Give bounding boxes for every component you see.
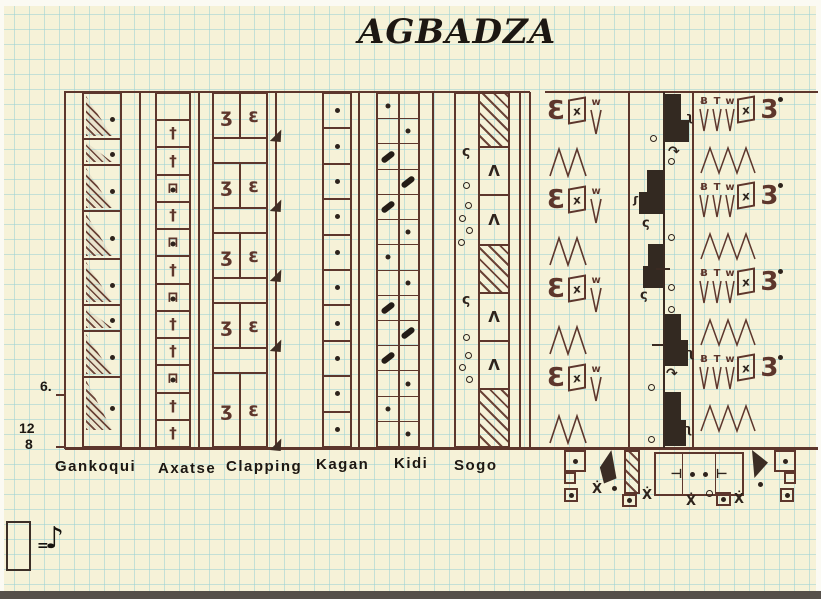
stroke-dot (569, 493, 574, 498)
footer-x-symbol: Ẋ (734, 492, 744, 507)
grid-line (358, 92, 360, 448)
stroke-dot (110, 189, 115, 194)
footer-wide-cell: ⊢ (716, 454, 742, 494)
up-stroke-symbol: † (169, 344, 177, 359)
mute-stroke-bar (380, 150, 396, 164)
stroke-dot (703, 472, 708, 477)
x-box-symbol: x (568, 96, 586, 124)
footer-hatch-box (624, 450, 640, 494)
stroke-dot (171, 378, 176, 383)
sogo-open-circle (463, 182, 470, 189)
b-flag-triangle: Ƀ (698, 183, 710, 219)
clap-glyph-right: ɛ (241, 304, 266, 347)
stroke-dot (171, 242, 176, 247)
stroke-dot (335, 391, 340, 396)
clap-glyph-right: ɛ (241, 374, 266, 446)
axatse-up-cell: † (157, 121, 189, 148)
footer-dot-box (716, 492, 731, 506)
t-mark: T (714, 97, 721, 107)
arc-hatch-symbol: Ɛ (547, 276, 565, 302)
narrow-v-shape (724, 193, 736, 219)
page-title: AGBADZA (358, 12, 556, 52)
sogo-accent-cell: Λ (480, 148, 508, 196)
narrow-v-shape (711, 193, 723, 219)
label-clapping: Clapping (226, 458, 302, 475)
sogo-accent-cell: Λ (480, 342, 508, 390)
gankoqui-stroke-cell (84, 260, 120, 306)
x-box-symbol: x (737, 353, 755, 381)
sogo-hatch-cell (480, 246, 508, 294)
kidi-column (376, 92, 420, 448)
x-box-symbol: x (568, 185, 586, 213)
narrow-v-shape (589, 375, 603, 403)
time-signature-top: 12 (19, 420, 35, 436)
kidi-cell (378, 346, 418, 371)
open-stroke-dot (406, 280, 411, 285)
bell-stroke-triangle (86, 380, 112, 430)
gankoqui-stroke-cell (84, 306, 120, 332)
axatse-up-cell: † (157, 339, 189, 366)
scan-edge-bottom (0, 591, 821, 599)
eighth-note-icon: ♪ (45, 524, 64, 554)
kagan-column (322, 92, 352, 448)
timeline-tick (656, 268, 670, 270)
arc-hatch-symbol: Ɛ (547, 187, 565, 213)
axatse-column: † † ⊓ † ⊓ † ⊓ † † ⊓ † † (155, 92, 191, 448)
stroke-dot (110, 152, 115, 157)
stroke-dot (785, 493, 790, 498)
notation-unit: Ƀ T w x Ɛ (698, 355, 802, 437)
timeline-block (665, 420, 686, 446)
stroke-dot (335, 179, 340, 184)
sogo-hatch-cell (480, 94, 508, 148)
stroke-dot (110, 236, 115, 241)
b-flag-mark: Ƀ (700, 269, 708, 279)
axatse-up-cell: † (157, 394, 189, 421)
grid-line (432, 92, 434, 448)
axatse-up-cell: † (157, 257, 189, 284)
kagan-stroke-cell (324, 306, 350, 341)
t-triangle: T (711, 183, 723, 219)
stroke-dot (335, 321, 340, 326)
gankoqui-stroke-cell (84, 378, 120, 432)
arc-dot (778, 97, 783, 102)
clap-glyph-right: ɛ (241, 234, 266, 277)
w-mark: w (725, 183, 734, 193)
sogo-open-circle (463, 334, 470, 341)
x-mark: x (742, 188, 750, 203)
footer-step-box (784, 472, 796, 484)
clap-glyph-left: ʒ (214, 304, 241, 347)
sogo-squiggle-symbol: ς (462, 292, 470, 308)
timeline-tick (652, 344, 665, 346)
narrow-v-shape (724, 279, 736, 305)
open-stroke-dot (386, 104, 391, 109)
notation-unit: Ɛ x w (547, 98, 627, 182)
gankoqui-column (82, 92, 122, 448)
open-stroke-dot (386, 255, 391, 260)
b-flag-mark: Ƀ (700, 355, 708, 365)
clap-rest-cell (214, 139, 266, 164)
kagan-stroke-cell (324, 94, 350, 129)
footer-flag-icon (598, 449, 621, 485)
kidi-cell (378, 371, 418, 396)
grid-line (139, 92, 141, 448)
clapping-column: ʒɛ ʒɛ ʒɛ ʒɛ ʒɛ (212, 92, 268, 448)
timeline-block (639, 192, 663, 214)
timeline-block (665, 314, 681, 340)
stroke-dot (110, 406, 115, 411)
kidi-cell (378, 321, 418, 346)
w-mark: w (725, 97, 734, 107)
bell-stroke-triangle (86, 96, 112, 136)
narrow-v-shape (711, 107, 723, 133)
axatse-up-cell: † (157, 203, 189, 230)
stroke-dot (110, 355, 115, 360)
e-arc-mark: Ɛ (760, 183, 778, 209)
gankoqui-stroke-cell (84, 140, 120, 166)
up-stroke-symbol: † (169, 126, 177, 141)
sogo-open-circle (465, 202, 472, 209)
axatse-down-cell: ⊓ (157, 230, 189, 257)
kidi-cell (378, 119, 418, 144)
gankoqui-stroke-cell (84, 166, 120, 212)
up-stroke-symbol: † (169, 263, 177, 278)
scan-edge-top (0, 0, 821, 6)
x-box-symbol: x (568, 363, 586, 391)
w-mark: w (591, 365, 600, 375)
arc-dot (778, 269, 783, 274)
w-mark: w (591, 187, 600, 197)
narrow-v-shape (589, 108, 603, 136)
bell-stroke-triangle (86, 168, 112, 208)
stroke-dot (171, 296, 176, 301)
measure-tick (56, 446, 65, 448)
stroke-dot (721, 497, 726, 502)
stroke-dot (335, 250, 340, 255)
kidi-cell (378, 296, 418, 321)
w-triangle-symbol: w (724, 269, 736, 305)
axatse-up-cell: † (157, 148, 189, 175)
footer-x-symbol: Ẋ (642, 488, 652, 503)
gankoqui-stroke-cell (84, 212, 120, 260)
b-flag-mark: Ƀ (700, 183, 708, 193)
w-triangle-symbol: w (589, 98, 603, 136)
open-stroke-dot (406, 230, 411, 235)
footer-dot-box (780, 488, 794, 502)
timeline-circle (668, 158, 675, 165)
timeline-block (665, 94, 681, 120)
zigzag-band (698, 403, 764, 433)
clap-glyph-left: ʒ (214, 234, 241, 277)
mute-stroke-bar (400, 175, 416, 189)
hook-symbol: ʅ (632, 192, 639, 206)
timeline-block (665, 340, 688, 366)
narrow-v-shape (589, 286, 603, 314)
mute-stroke-bar (400, 326, 416, 340)
scan-edge-left (0, 0, 4, 599)
kidi-cell (378, 94, 418, 119)
timeline-circle (648, 436, 655, 443)
hook-symbol: ʅ (687, 346, 694, 360)
kidi-cell (378, 195, 418, 220)
w-triangle-symbol: w (589, 187, 603, 225)
timeline-circle (668, 234, 675, 241)
bell-stroke-triangle (86, 334, 112, 374)
b-flag-triangle: Ƀ (698, 355, 710, 391)
arc-hatch-symbol: Ɛ (756, 355, 783, 360)
stroke-dot (110, 318, 115, 323)
timeline-circle (648, 384, 655, 391)
arc-dot (778, 355, 783, 360)
narrow-v-shape (711, 365, 723, 391)
zigzag-band (698, 317, 764, 347)
stroke-dot (335, 285, 340, 290)
sogo-open-circle (459, 364, 466, 371)
clap-glyph-left: ʒ (214, 164, 241, 207)
mute-stroke-bar (380, 301, 396, 315)
x-mark: x (742, 102, 750, 117)
gankoqui-stroke-cell (84, 94, 120, 140)
x-mark: x (742, 274, 750, 289)
timeline-circle (668, 306, 675, 313)
w-mark: w (591, 98, 600, 108)
clap-cell: ʒɛ (214, 94, 266, 139)
label-gankoqui: Gankoqui (55, 458, 136, 475)
notation-unit: Ƀ T w x Ɛ (698, 269, 802, 351)
narrow-v-shape (711, 279, 723, 305)
timeline-block (648, 244, 663, 266)
narrow-v-shape (589, 197, 603, 225)
arc-hatch-symbol: Ɛ (756, 183, 783, 188)
stroke-dot (110, 283, 115, 288)
stroke-dot (573, 459, 578, 464)
score-sheet: AGBADZA 6. 12 8 † † ⊓ † ⊓ † ⊓ † † ⊓ (0, 0, 821, 599)
legend-cell-box (6, 521, 31, 571)
timeline-circle (668, 284, 675, 291)
footer-dot-box (622, 494, 637, 507)
stroke-dot (783, 459, 788, 464)
w-mark: w (725, 355, 734, 365)
stroke-dot (612, 486, 617, 491)
squiggle-symbol: ς (640, 288, 648, 303)
x-mark: x (573, 192, 581, 207)
w-triangle-symbol: w (589, 365, 603, 403)
measure-tick (56, 394, 65, 396)
footer-circle (706, 490, 713, 497)
axatse-rest-cell (157, 94, 189, 121)
notation-unit: Ƀ T w x Ɛ (698, 97, 802, 179)
x-box-symbol: x (737, 267, 755, 295)
kidi-cell (378, 271, 418, 296)
notation-unit: Ɛ x w (547, 276, 627, 360)
stroke-dot (171, 187, 176, 192)
sogo-open-circle (459, 215, 466, 222)
e-arc-mark: Ɛ (760, 355, 778, 381)
footer-wide-cell (683, 454, 716, 494)
clap-glyph-left: ʒ (214, 374, 241, 446)
clap-rest-cell (214, 279, 266, 304)
zigzag-band (547, 413, 589, 445)
accent-symbol: Λ (488, 211, 500, 229)
turn-symbol: ↷ (666, 366, 678, 382)
tick-left-symbol: ⊣ (670, 467, 682, 482)
w-triangle-symbol: w (589, 276, 603, 314)
bell-stroke-triangle (86, 214, 112, 256)
label-axatse: Axatse (158, 460, 216, 477)
e-arc-mark: Ɛ (760, 97, 778, 123)
footer-flag-icon (752, 450, 768, 478)
hook-symbol: ʅ (686, 110, 693, 124)
sogo-accent-cell: Λ (480, 294, 508, 342)
kidi-cell (378, 220, 418, 245)
hook-symbol: ʅ (685, 422, 692, 436)
grid-line (275, 92, 277, 448)
w-triangle-symbol: w (724, 183, 736, 219)
label-sogo: Sogo (454, 457, 498, 474)
stroke-dot (110, 117, 115, 122)
sogo-open-circle (466, 227, 473, 234)
timeline-column: ʅ ↷ ʅ ς ς ʅ ↷ ʅ (630, 92, 694, 448)
accent-symbol: Λ (488, 356, 500, 374)
t-triangle: T (711, 97, 723, 133)
sogo-right-subcolumn: Λ Λ Λ Λ (480, 94, 508, 446)
footer-x-symbol: Ẋ (592, 482, 602, 497)
x-box-symbol: x (737, 181, 755, 209)
open-stroke-dot (406, 431, 411, 436)
measure-marker: 6. (40, 378, 52, 394)
sogo-open-circle (466, 376, 473, 383)
stroke-dot (335, 108, 340, 113)
kidi-cell (378, 397, 418, 422)
zigzag-band (547, 146, 589, 178)
timeline-block (665, 392, 681, 420)
axatse-up-cell: † (157, 421, 189, 446)
clap-glyph-right: ɛ (241, 94, 266, 137)
sogo-open-circle (458, 239, 465, 246)
squiggle-symbol: ς (642, 216, 650, 231)
stroke-dot (690, 472, 695, 477)
arc-hatch-symbol: Ɛ (756, 97, 783, 102)
up-stroke-symbol: † (169, 317, 177, 332)
sogo-column: ς ς Λ Λ Λ Λ (454, 92, 510, 448)
sogo-hatch-cell (480, 390, 508, 446)
scan-edge-right (816, 0, 821, 599)
e-arc-mark: Ɛ (760, 269, 778, 295)
sogo-squiggle-symbol: ς (462, 144, 470, 160)
footer-step-box (564, 472, 576, 484)
grid-line (198, 92, 200, 448)
up-stroke-symbol: † (169, 154, 177, 169)
b-flag-triangle: Ƀ (698, 269, 710, 305)
stroke-dot (335, 144, 340, 149)
up-stroke-symbol: † (169, 426, 177, 441)
up-stroke-symbol: † (169, 208, 177, 223)
footer-wide-box: ⊣ ⊢ (654, 452, 744, 496)
narrow-v-shape (724, 107, 736, 133)
kagan-stroke-cell (324, 342, 350, 377)
sogo-left-subcolumn: ς ς (456, 94, 480, 446)
mute-stroke-bar (380, 351, 396, 365)
footer-wide-cell: ⊣ (656, 454, 683, 494)
axatse-up-cell: † (157, 312, 189, 339)
narrow-v-shape (698, 107, 710, 133)
footer-dot-box (564, 488, 578, 502)
x-mark: x (573, 370, 581, 385)
kagan-stroke-cell (324, 377, 350, 412)
footer-notation: Ẋ Ẋ ⊣ ⊢ Ẋ Ẋ (556, 450, 820, 508)
timeline-block (647, 170, 663, 192)
narrow-v-shape (698, 365, 710, 391)
t-triangle: T (711, 355, 723, 391)
tick-right-symbol: ⊢ (716, 467, 728, 482)
x-mark: x (742, 360, 750, 375)
clap-rest-cell (214, 349, 266, 374)
zigzag-band (547, 235, 589, 267)
x-box-symbol: x (737, 95, 755, 123)
arc-hatch-symbol: Ɛ (547, 98, 565, 124)
b-flag-mark: Ƀ (700, 97, 708, 107)
up-stroke-symbol: † (169, 399, 177, 414)
label-kidi: Kidi (394, 455, 428, 472)
kidi-cell (378, 245, 418, 270)
notation-unit: Ɛ x w (547, 187, 627, 271)
x-mark: x (573, 103, 581, 118)
zigzag-band (698, 231, 764, 261)
kagan-stroke-cell (324, 129, 350, 164)
w-triangle-symbol: w (724, 97, 736, 133)
open-stroke-dot (406, 381, 411, 386)
stroke-dot (335, 214, 340, 219)
axatse-down-cell: ⊓ (157, 366, 189, 393)
kidi-cell (378, 144, 418, 169)
arc-hatch-symbol: Ɛ (756, 269, 783, 274)
dance-notation-column-a: Ɛ x w Ɛ x w Ɛ x w Ɛ x (547, 98, 627, 448)
narrow-v-shape (724, 365, 736, 391)
axatse-down-cell: ⊓ (157, 285, 189, 312)
kidi-cell (378, 422, 418, 446)
zigzag-band (698, 145, 764, 175)
t-mark: T (714, 183, 721, 193)
footer-x-symbol: Ẋ (686, 494, 696, 509)
footer-step-box (774, 450, 796, 472)
x-mark: x (573, 281, 581, 296)
gankoqui-stroke-cell (84, 332, 120, 378)
open-stroke-dot (406, 129, 411, 134)
dance-notation-column-c: Ƀ T w x Ɛ Ƀ T w x Ɛ Ƀ T w x (698, 97, 802, 448)
axatse-down-cell: ⊓ (157, 176, 189, 203)
bell-stroke-triangle (86, 142, 112, 162)
accent-symbol: Λ (488, 308, 500, 326)
grid-line (519, 92, 521, 448)
w-mark: w (725, 269, 734, 279)
mute-stroke-bar (380, 200, 396, 214)
clap-glyph-right: ɛ (241, 164, 266, 207)
notation-unit: Ƀ T w x Ɛ (698, 183, 802, 265)
label-kagan: Kagan (316, 456, 369, 473)
clap-cell: ʒɛ (214, 164, 266, 209)
open-stroke-dot (386, 406, 391, 411)
timeline-circle (650, 135, 657, 142)
clap-cell: ʒɛ (214, 304, 266, 349)
stroke-dot (758, 482, 763, 487)
x-box-symbol: x (568, 274, 586, 302)
clap-cell: ʒɛ (214, 234, 266, 279)
sogo-open-circle (465, 352, 472, 359)
stroke-dot (627, 498, 632, 503)
notation-unit: Ɛ x w (547, 365, 627, 449)
time-signature-bottom: 8 (25, 436, 33, 452)
